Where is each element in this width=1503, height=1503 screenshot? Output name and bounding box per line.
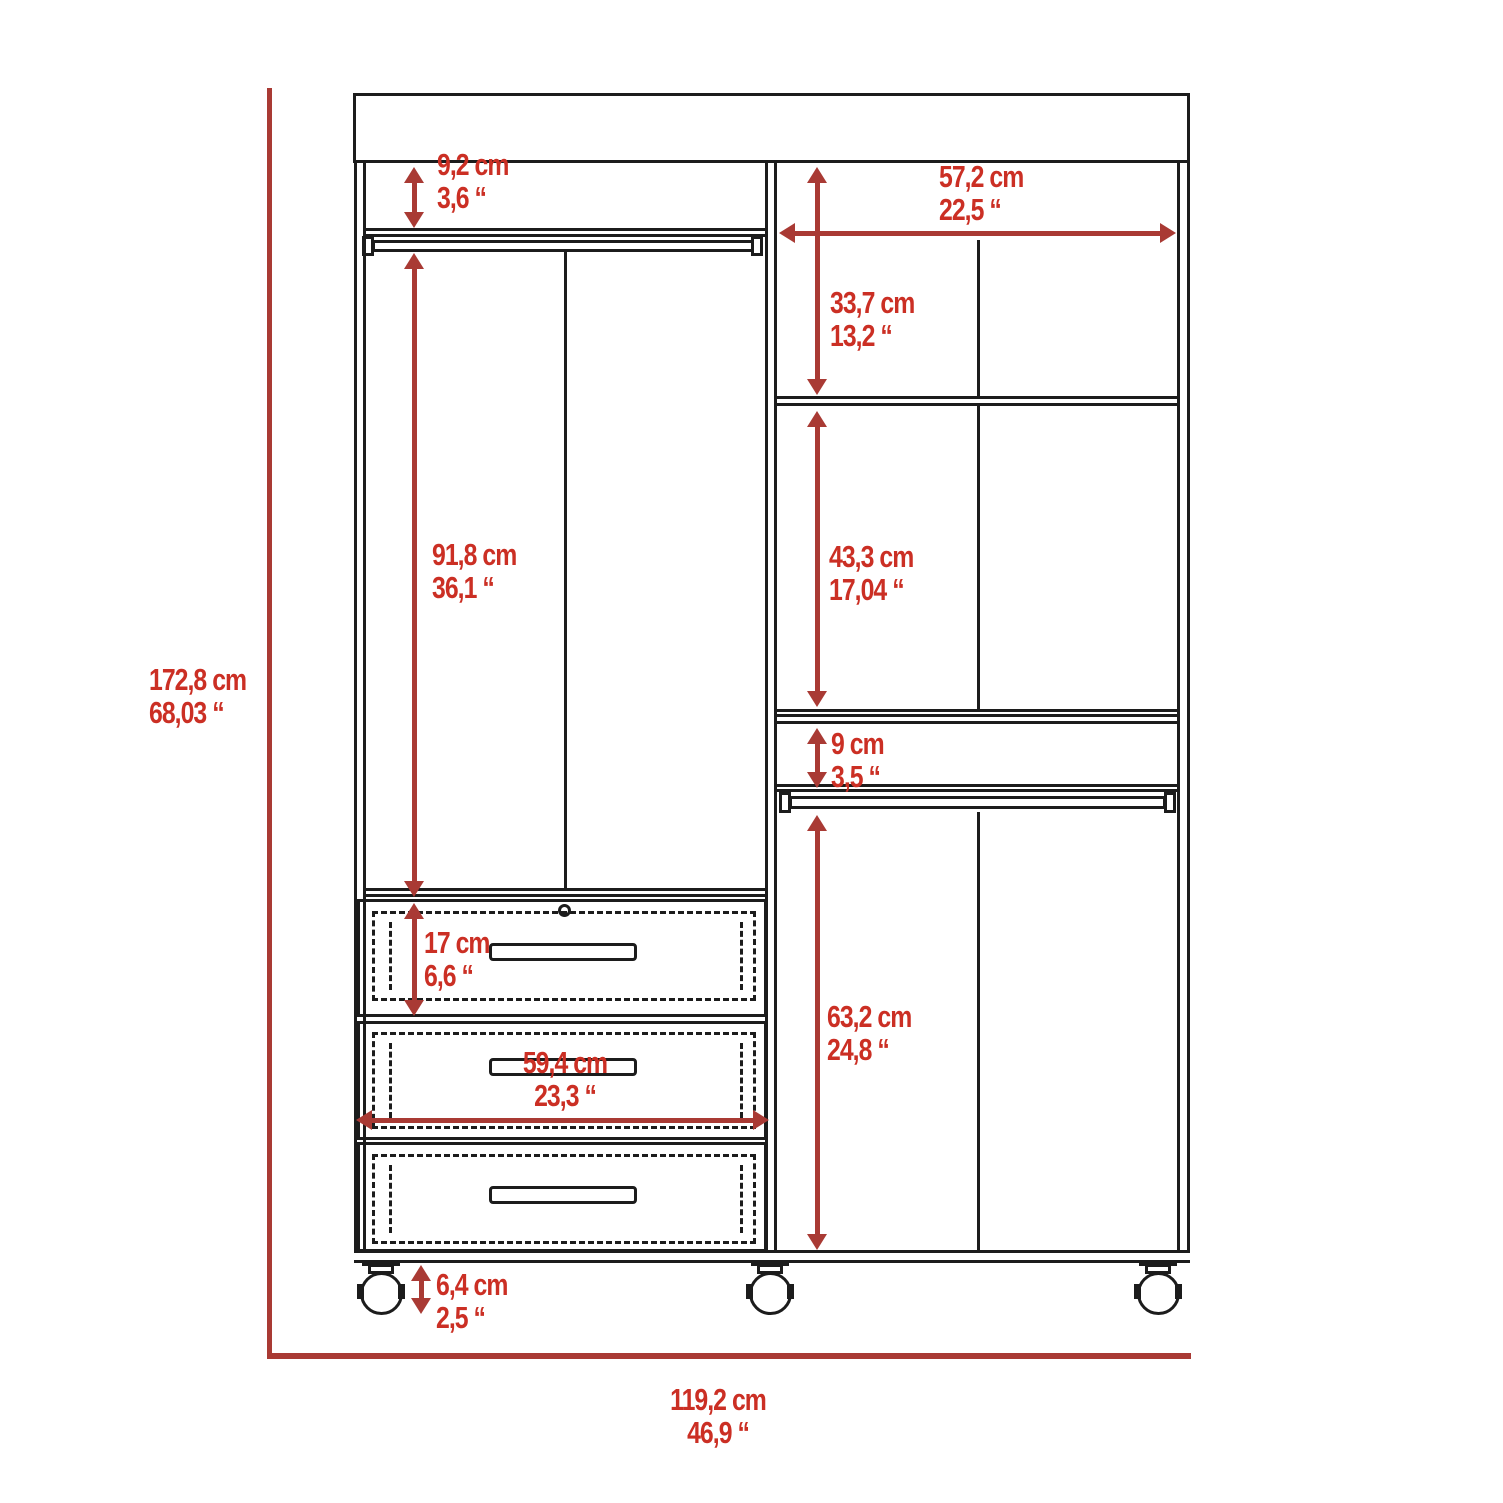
drawer-3-handle[interactable]: [489, 1186, 637, 1204]
label-drawer-height: 17 cm 6,6 “: [424, 926, 490, 992]
value-inch: 23,3 “: [500, 1079, 630, 1112]
label-left-top-gap: 9,2 cm 3,6 “: [437, 148, 508, 214]
arrow-drawer-width: [371, 1118, 754, 1123]
drawer-1-side-thickness-right: [740, 922, 743, 990]
label-right-lower-section: 63,2 cm 24,8 “: [827, 1000, 911, 1066]
caster-center-wheel-icon: [749, 1272, 792, 1315]
label-overall-height: 172,8 cm 68,03 “: [149, 663, 246, 729]
drawer-3-side-thickness-left: [389, 1165, 392, 1233]
arrow-caster-height: [419, 1280, 424, 1299]
value-inch: 6,6 “: [424, 959, 490, 992]
dimension-diagram: 9,2 cm 3,6 “ 91,8 cm 36,1 “ 17 cm 6,6 “ …: [0, 0, 1503, 1503]
left-rod-shelf-board: [366, 228, 766, 237]
arrow-left-hanging-height: [412, 268, 417, 882]
value-cm: 59,4 cm: [500, 1046, 630, 1079]
label-overall-width: 119,2 cm 46,9 “: [653, 1383, 783, 1449]
right-hanging-rod: [789, 796, 1166, 809]
drawer-1-side-thickness-left: [389, 922, 392, 990]
value-cm: 119,2 cm: [653, 1383, 783, 1416]
drawer-1-keyhole: [558, 904, 571, 917]
caster-right-wheel-icon: [1137, 1272, 1180, 1315]
value-cm: 17 cm: [424, 926, 490, 959]
right-shelf-2: [777, 709, 1177, 717]
left-section-center-seam: [564, 252, 567, 888]
left-hanging-rod: [372, 240, 754, 252]
value-inch: 17,04 “: [829, 573, 913, 606]
label-left-hanging-height: 91,8 cm 36,1 “: [432, 538, 516, 604]
right-lower-divider: [977, 812, 980, 1250]
left-rod-end-bracket-left: [362, 236, 374, 256]
right-rod-end-bracket-left: [779, 792, 791, 813]
arrow-right-middle-section: [815, 426, 820, 692]
label-right-interior-width: 57,2 cm 22,5 “: [939, 160, 1023, 226]
value-inch: 36,1 “: [432, 571, 516, 604]
arrow-right-top-section: [815, 182, 820, 380]
value-cm: 57,2 cm: [939, 160, 1023, 193]
right-middle-divider: [977, 404, 980, 709]
left-drawer-top-board: [366, 888, 766, 897]
left-rod-end-bracket-right: [751, 236, 763, 256]
value-inch: 3,5 “: [831, 760, 884, 793]
value-inch: 68,03 “: [149, 696, 246, 729]
arrow-drawer-height: [412, 918, 417, 1001]
value-cm: 91,8 cm: [432, 538, 516, 571]
arrow-right-interior-width: [794, 231, 1161, 236]
value-cm: 172,8 cm: [149, 663, 246, 696]
value-inch: 24,8 “: [827, 1033, 911, 1066]
value-cm: 6,4 cm: [436, 1268, 507, 1301]
value-cm: 33,7 cm: [830, 286, 914, 319]
arrow-right-rod-gap: [815, 743, 820, 773]
label-right-top-section: 33,7 cm 13,2 “: [830, 286, 914, 352]
drawer-1-handle[interactable]: [489, 943, 637, 961]
value-cm: 9,2 cm: [437, 148, 508, 181]
value-inch: 2,5 “: [436, 1301, 507, 1334]
overall-height-bracket-line: [267, 88, 272, 1358]
right-side-wall: [1177, 160, 1190, 1252]
value-cm: 63,2 cm: [827, 1000, 911, 1033]
value-inch: 22,5 “: [939, 193, 1023, 226]
value-cm: 43,3 cm: [829, 540, 913, 573]
label-drawer-width: 59,4 cm 23,3 “: [500, 1046, 630, 1112]
value-inch: 3,6 “: [437, 181, 508, 214]
drawer-2-side-thickness-left: [389, 1043, 392, 1118]
right-upper-divider: [977, 240, 980, 396]
arrow-right-lower-section: [815, 830, 820, 1235]
drawer-2-side-thickness-right: [740, 1043, 743, 1118]
caster-left-wheel-icon: [360, 1272, 403, 1315]
overall-width-bracket-line: [267, 1353, 1191, 1359]
label-right-rod-gap: 9 cm 3,5 “: [831, 727, 884, 793]
value-inch: 13,2 “: [830, 319, 914, 352]
arrow-left-top-gap: [412, 182, 417, 213]
right-shelf-2-underside: [777, 721, 1177, 724]
value-cm: 9 cm: [831, 727, 884, 760]
value-inch: 46,9 “: [653, 1416, 783, 1449]
label-caster-height: 6,4 cm 2,5 “: [436, 1268, 507, 1334]
label-right-middle-section: 43,3 cm 17,04 “: [829, 540, 913, 606]
drawer-3-side-thickness-right: [740, 1165, 743, 1233]
right-rod-end-bracket-right: [1164, 792, 1176, 813]
